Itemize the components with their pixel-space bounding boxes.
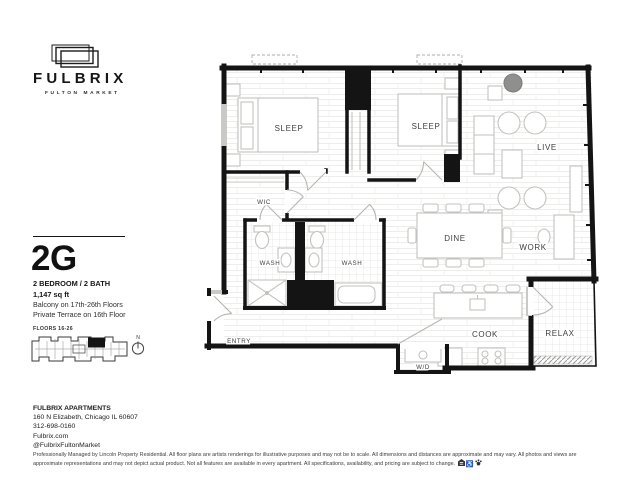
room-label-cook: COOK xyxy=(472,330,498,339)
room-label-wash2: WASH xyxy=(342,260,363,267)
contact-social: @FulbrixFultonMarket xyxy=(33,441,138,450)
room-label-wash1: WASH xyxy=(260,260,281,267)
contact-address: 160 N Elizabeth, Chicago IL 60607 xyxy=(33,413,138,422)
fulbrix-logo-icon xyxy=(50,44,102,70)
unit-location-marker xyxy=(88,338,105,348)
floorplan-drawing: SLEEP SLEEP WIC LIVE DINE WORK WASH WASH… xyxy=(202,50,620,398)
north-arrow-icon: N xyxy=(129,333,147,359)
room-label-sleep1: SLEEP xyxy=(275,124,304,133)
brand-name: FULBRIX xyxy=(33,70,127,87)
unit-code: 2G xyxy=(31,239,77,279)
room-label-entry: ENTRY xyxy=(227,338,251,345)
pet-icon xyxy=(475,459,482,466)
contact-block: FULBRIX APARTMENTS 160 N Elizabeth, Chic… xyxy=(33,404,138,450)
disclaimer-text: Professionally Managed by Lincoln Proper… xyxy=(33,452,576,467)
overhead-dashed-outline xyxy=(252,55,462,64)
divider-rule xyxy=(33,236,125,237)
unit-floors-label: FLOORS 16-26 xyxy=(33,326,73,332)
unit-note-balcony: Balcony on 17th-26th Floors xyxy=(33,300,123,309)
legal-disclaimer: Professionally Managed by Lincoln Proper… xyxy=(33,452,595,468)
room-label-relax: RELAX xyxy=(545,329,574,338)
building-keyplan xyxy=(31,334,129,364)
accessibility-icon: ♿ xyxy=(466,461,474,468)
floorplan-flyer-page: FULBRIX FULTON MARKET 2G 2 BEDROOM / 2 B… xyxy=(0,0,622,480)
room-label-dine: DINE xyxy=(444,234,466,243)
room-label-live: LIVE xyxy=(537,143,557,152)
terrace-hatch-strip xyxy=(534,356,592,364)
room-label-wic: WIC xyxy=(257,199,271,206)
room-label-work: WORK xyxy=(519,243,546,252)
contact-name: FULBRIX APARTMENTS xyxy=(33,404,138,413)
equal-housing-icon xyxy=(458,459,465,466)
room-label-wd: W/D xyxy=(416,364,430,371)
contact-website: Fulbrix.com xyxy=(33,432,138,441)
compass-label: N xyxy=(136,335,140,341)
brand-tagline: FULTON MARKET xyxy=(45,91,120,96)
contact-phone: 312-698-0160 xyxy=(33,422,138,431)
unit-spec: 2 BEDROOM / 2 BATH xyxy=(33,279,110,288)
unit-note-terrace: Private Terrace on 16th Floor xyxy=(33,310,126,319)
unit-area: 1,147 sq ft xyxy=(33,290,69,299)
room-label-sleep2: SLEEP xyxy=(412,122,441,131)
